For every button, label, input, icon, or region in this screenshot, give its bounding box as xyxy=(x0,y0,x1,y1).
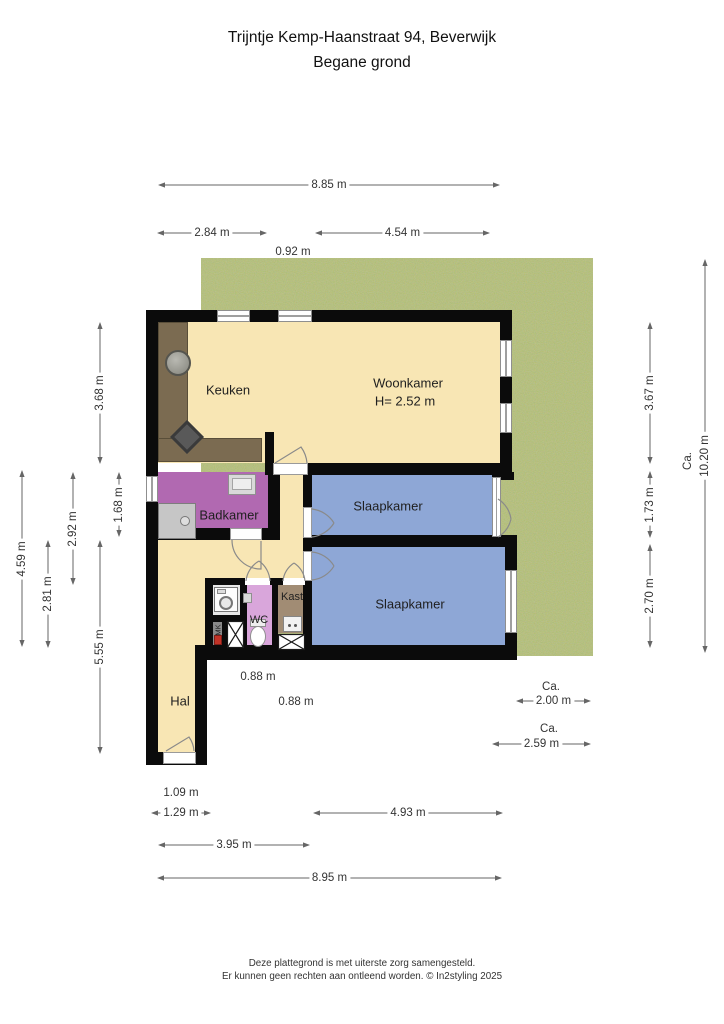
room-label-hal: Hal xyxy=(170,694,190,709)
room-label-badkamer: Badkamer xyxy=(199,508,258,523)
room-label-mk: MK xyxy=(214,624,223,635)
room-label-kast: Kast xyxy=(281,591,303,603)
dimension-label: 0.92 m xyxy=(272,246,313,258)
dimension-label: 2.70 m xyxy=(644,575,656,616)
dimension-label: 10.20 m xyxy=(699,432,711,480)
dimension-label: 2.81 m xyxy=(42,573,54,614)
door-swing-arcs xyxy=(166,447,511,751)
room-label-slaapkamer-1: Slaapkamer xyxy=(353,499,422,514)
dimension-label: 2.59 m xyxy=(521,738,562,750)
disclaimer-line1: Deze plattegrond is met uiterste zorg sa… xyxy=(0,957,724,970)
dimension-label: Ca. xyxy=(539,681,563,693)
dimension-label: 1.68 m xyxy=(113,484,125,525)
dimension-label: 4.93 m xyxy=(387,807,428,819)
room-label-slaapkamer-2: Slaapkamer xyxy=(375,597,444,612)
dimension-label: 4.59 m xyxy=(16,538,28,579)
dimension-label: 1.09 m xyxy=(160,787,201,799)
dimension-label: 8.85 m xyxy=(308,179,349,191)
dimension-label: 3.68 m xyxy=(94,372,106,413)
dimension-label: 2.00 m xyxy=(533,695,574,707)
dimension-label: 0.88 m xyxy=(275,696,316,708)
dimension-label: 1.29 m xyxy=(160,807,201,819)
room-label-keuken: Keuken xyxy=(206,383,250,398)
disclaimer: Deze plattegrond is met uiterste zorg sa… xyxy=(0,957,724,983)
dimension-label: 2.92 m xyxy=(67,508,79,549)
dimension-label: 3.67 m xyxy=(644,372,656,413)
floorplan-page: Trijntje Kemp-Haanstraat 94, Beverwijk B… xyxy=(0,0,724,1024)
dimension-arrows xyxy=(19,182,707,880)
dimension-label: 1.73 m xyxy=(644,484,656,525)
ceiling-height-label: H= 2.52 m xyxy=(375,394,435,409)
dimension-label: 3.95 m xyxy=(213,839,254,851)
dimension-label: 4.54 m xyxy=(382,227,423,239)
dimension-label: 2.84 m xyxy=(191,227,232,239)
dimension-label: Ca. xyxy=(682,449,694,473)
dimension-label: Ca. xyxy=(537,723,561,735)
disclaimer-line2: Er kunnen geen rechten aan ontleend word… xyxy=(0,970,724,983)
dimension-label: 8.95 m xyxy=(309,872,350,884)
room-label-woonkamer: Woonkamer xyxy=(373,376,443,391)
dimension-label: 5.55 m xyxy=(94,626,106,667)
room-label-wc: WC xyxy=(250,614,268,626)
dimension-label: 0.88 m xyxy=(237,671,278,683)
